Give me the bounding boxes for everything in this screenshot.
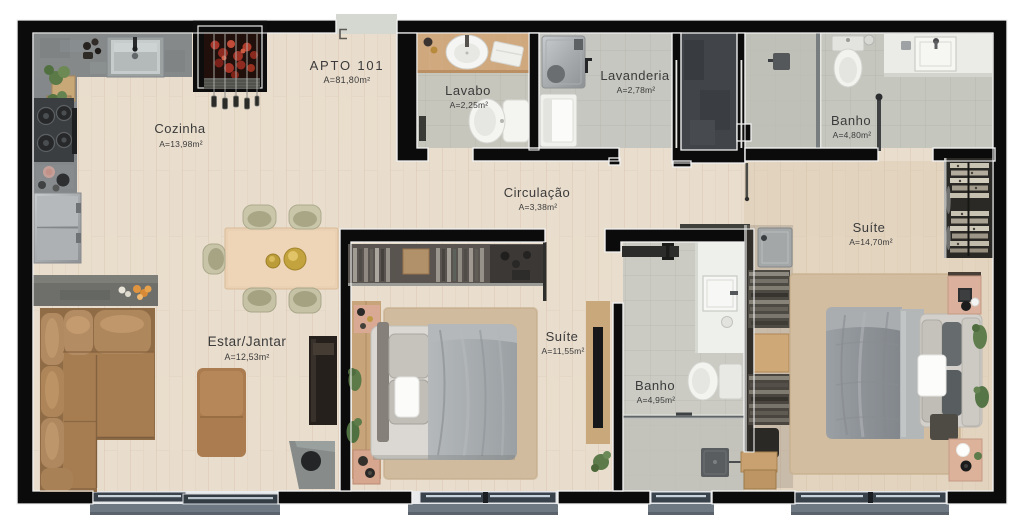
svg-text:Circulação: Circulação bbox=[504, 185, 570, 200]
svg-text:A=2,25m²: A=2,25m² bbox=[450, 100, 489, 110]
svg-text:A=3,38m²: A=3,38m² bbox=[519, 202, 558, 212]
svg-text:Banho: Banho bbox=[831, 113, 871, 128]
svg-text:Suíte: Suíte bbox=[546, 329, 579, 344]
svg-text:Suíte: Suíte bbox=[853, 220, 886, 235]
svg-text:A=4,80m²: A=4,80m² bbox=[833, 130, 872, 140]
svg-text:Estar/Jantar: Estar/Jantar bbox=[208, 334, 287, 349]
svg-text:A=12,53m²: A=12,53m² bbox=[224, 352, 269, 362]
svg-text:A=81,80m²: A=81,80m² bbox=[324, 75, 371, 85]
svg-text:A=11,55m²: A=11,55m² bbox=[542, 346, 585, 356]
svg-text:Lavanderia: Lavanderia bbox=[600, 68, 670, 83]
svg-text:A=13,98m²: A=13,98m² bbox=[159, 139, 203, 149]
svg-text:A=14,70m²: A=14,70m² bbox=[849, 237, 893, 247]
svg-text:APTO 101: APTO 101 bbox=[310, 58, 385, 73]
svg-text:A=2,78m²: A=2,78m² bbox=[617, 85, 656, 95]
svg-text:Cozinha: Cozinha bbox=[154, 121, 205, 136]
svg-text:Banho: Banho bbox=[635, 378, 675, 393]
svg-text:A=4,95m²: A=4,95m² bbox=[637, 395, 676, 405]
svg-text:Lavabo: Lavabo bbox=[445, 83, 491, 98]
